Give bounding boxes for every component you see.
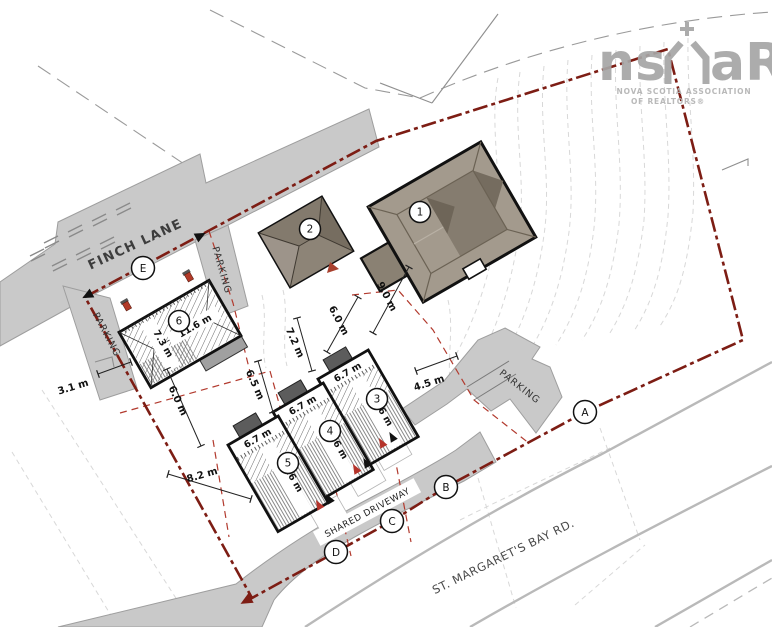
svg-text:1: 1 xyxy=(417,207,424,219)
logo-ar: aR xyxy=(710,33,772,93)
svg-text:5: 5 xyxy=(285,458,292,470)
nsar-logo: ns aR NOVA SCOTIA ASSOCIATION OF REALTOR… xyxy=(598,22,772,106)
number-2: 2 xyxy=(300,219,321,240)
site-plan-drawing: 6.7 m 11.6 m xyxy=(0,0,772,627)
dimension-label: 8.2 m xyxy=(186,466,219,485)
svg-text:2: 2 xyxy=(307,224,314,236)
logo-ns: ns xyxy=(598,33,666,93)
dimension-label: 3.1 m xyxy=(57,378,90,398)
svg-text:C: C xyxy=(388,516,395,528)
svg-text:A: A xyxy=(581,407,589,419)
site-plan-svg: 6.7 m 11.6 m xyxy=(0,0,772,627)
marker-e: E xyxy=(132,257,155,280)
marker-b: B xyxy=(435,476,458,499)
dimension-label: 6.0 m xyxy=(326,304,351,337)
svg-text:B: B xyxy=(442,482,449,494)
marker-c: C xyxy=(381,510,404,533)
svg-text:3: 3 xyxy=(374,394,381,406)
number-1: 1 xyxy=(410,202,431,223)
svg-text:E: E xyxy=(140,263,147,275)
svg-text:4: 4 xyxy=(327,426,334,438)
dimension-label: 6.0 m xyxy=(166,384,189,417)
logo-line1: NOVA SCOTIA ASSOCIATION xyxy=(617,87,752,96)
number-4: 4 xyxy=(320,421,341,442)
marker-a: A xyxy=(574,401,597,424)
number-5: 5 xyxy=(278,453,299,474)
svg-text:6: 6 xyxy=(176,316,183,328)
logo-line2: OF REALTORS® xyxy=(631,97,705,106)
number-6: 6 xyxy=(169,311,190,332)
building-2 xyxy=(259,197,352,287)
svg-text:D: D xyxy=(332,547,340,559)
number-3: 3 xyxy=(367,389,388,410)
dimension-label: 7.2 m xyxy=(283,326,306,359)
marker-d: D xyxy=(325,541,348,564)
dimension-label: 9.0 m xyxy=(374,280,399,313)
st-margarets-label: ST. MARGARET'S BAY RD. xyxy=(430,516,577,597)
building-1 xyxy=(340,142,537,321)
